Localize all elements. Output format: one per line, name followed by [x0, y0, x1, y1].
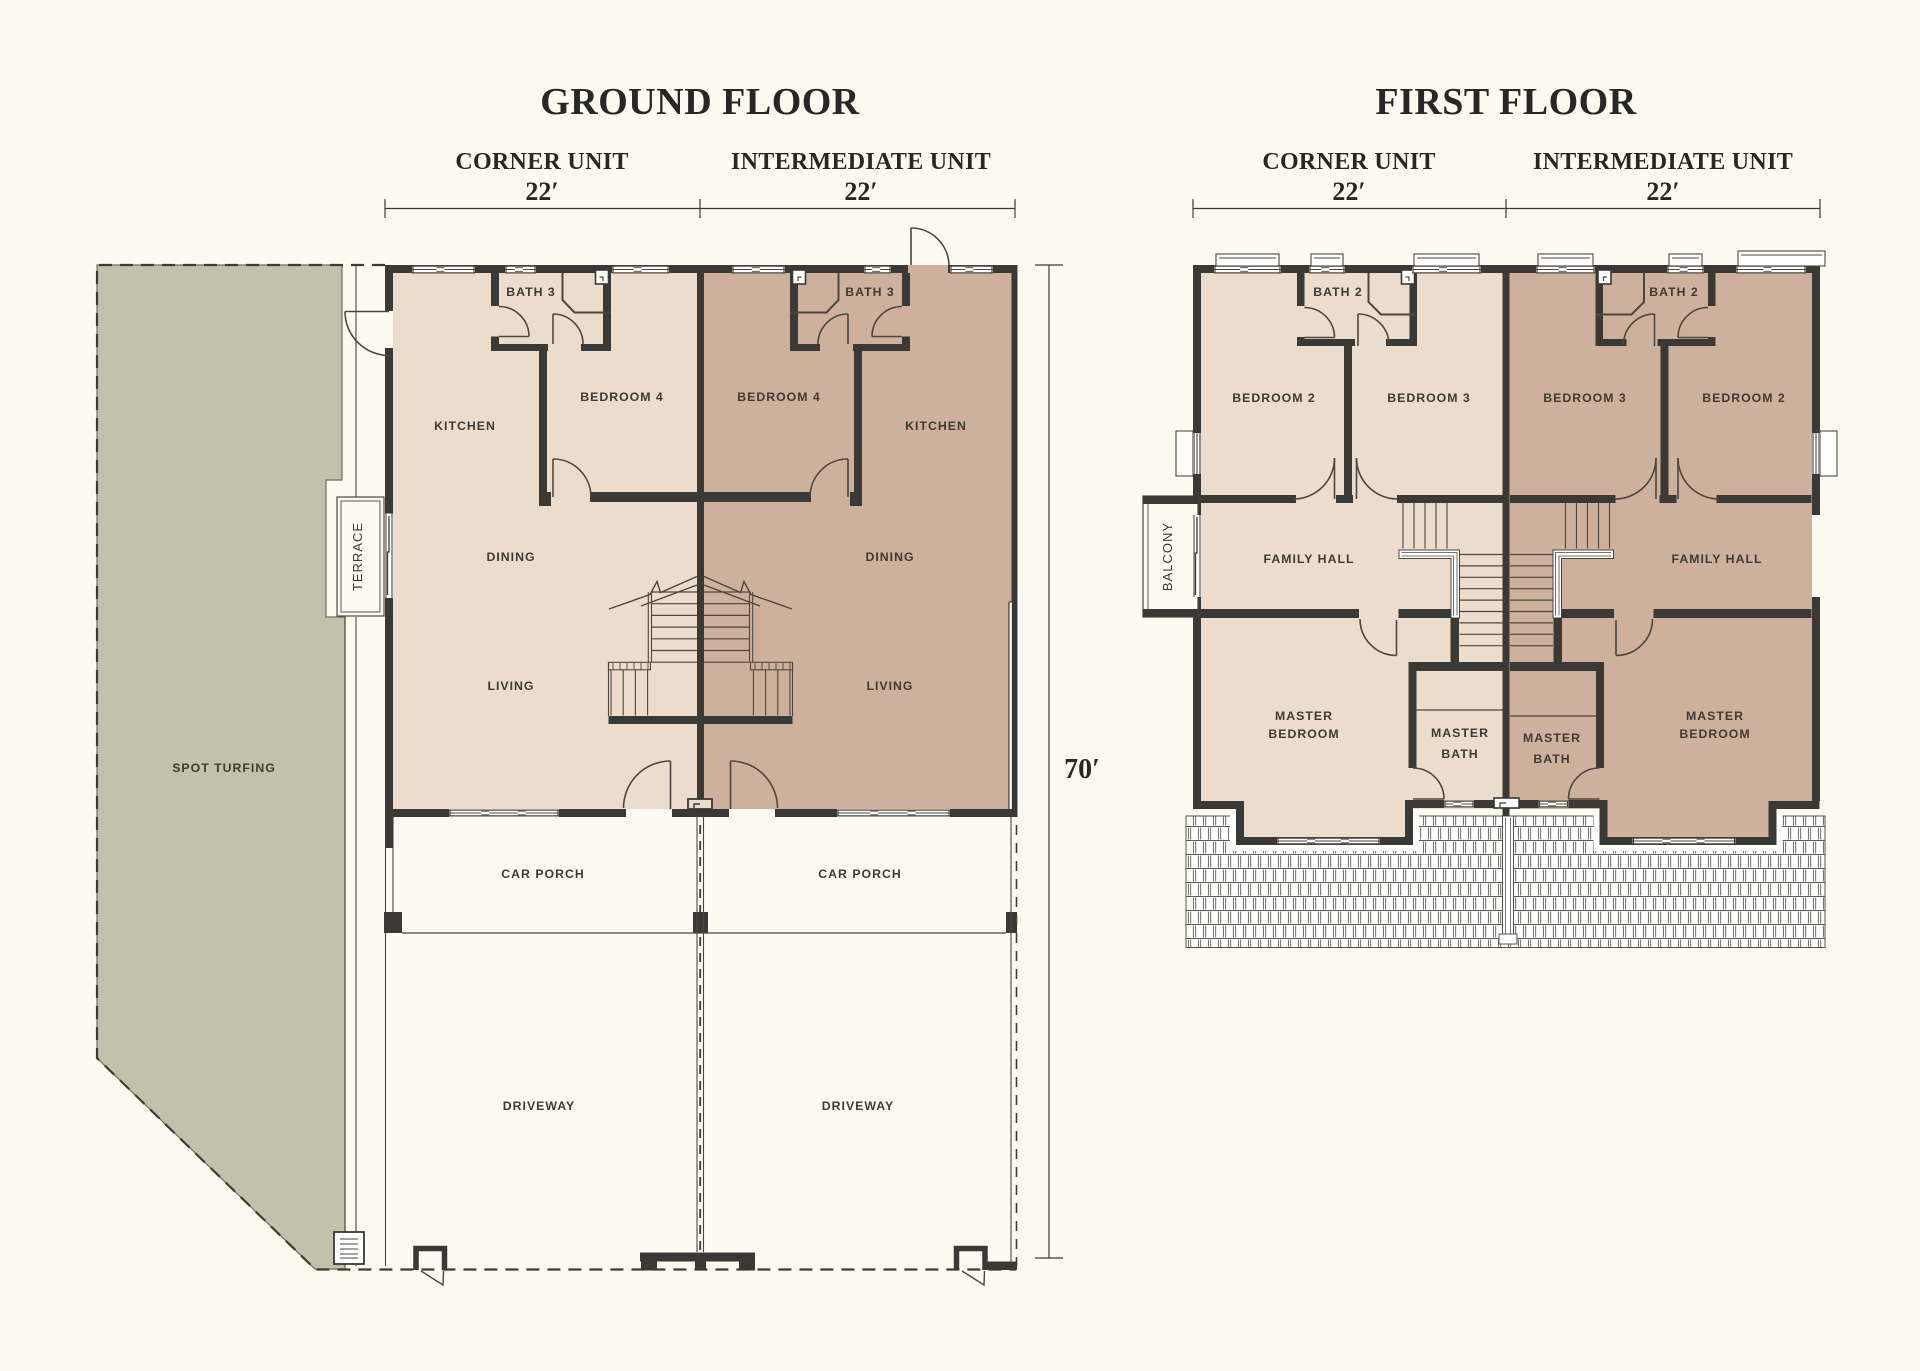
svg-text:MASTER: MASTER — [1523, 731, 1581, 745]
svg-text:FIRST FLOOR: FIRST FLOOR — [1375, 81, 1636, 123]
svg-text:CORNER UNIT: CORNER UNIT — [455, 149, 628, 175]
svg-text:SPOT TURFING: SPOT TURFING — [172, 761, 276, 775]
svg-text:LIVING: LIVING — [488, 679, 535, 693]
svg-text:KITCHEN: KITCHEN — [434, 419, 496, 433]
svg-text:FAMILY HALL: FAMILY HALL — [1264, 552, 1355, 566]
svg-text:GROUND FLOOR: GROUND FLOOR — [540, 81, 860, 123]
svg-text:BATH 2: BATH 2 — [1313, 285, 1363, 299]
svg-text:KITCHEN: KITCHEN — [905, 419, 967, 433]
svg-text:CORNER UNIT: CORNER UNIT — [1262, 149, 1435, 175]
svg-text:22′: 22′ — [1332, 177, 1365, 206]
svg-text:22′: 22′ — [1646, 177, 1679, 206]
svg-text:BEDROOM 2: BEDROOM 2 — [1702, 391, 1785, 405]
svg-text:CAR PORCH: CAR PORCH — [501, 867, 584, 881]
svg-text:BEDROOM 4: BEDROOM 4 — [737, 390, 820, 404]
svg-text:FAMILY HALL: FAMILY HALL — [1672, 552, 1763, 566]
svg-text:MASTER: MASTER — [1686, 709, 1744, 723]
svg-text:BATH 3: BATH 3 — [845, 285, 895, 299]
svg-text:BEDROOM: BEDROOM — [1268, 727, 1339, 741]
svg-text:DRIVEWAY: DRIVEWAY — [503, 1099, 575, 1113]
svg-text:BATH: BATH — [1533, 752, 1570, 766]
svg-text:22′: 22′ — [844, 177, 877, 206]
svg-text:BEDROOM 3: BEDROOM 3 — [1543, 391, 1626, 405]
svg-text:MASTER: MASTER — [1275, 709, 1333, 723]
svg-text:TERRACE: TERRACE — [350, 522, 365, 591]
svg-text:BALCONY: BALCONY — [1160, 522, 1175, 591]
svg-text:22′: 22′ — [525, 177, 558, 206]
svg-text:LIVING: LIVING — [867, 679, 914, 693]
svg-text:DRIVEWAY: DRIVEWAY — [822, 1099, 894, 1113]
svg-text:BATH: BATH — [1441, 747, 1478, 761]
svg-text:70′: 70′ — [1064, 754, 1100, 785]
svg-text:CAR PORCH: CAR PORCH — [818, 867, 901, 881]
svg-text:BEDROOM: BEDROOM — [1679, 727, 1750, 741]
svg-text:BEDROOM 3: BEDROOM 3 — [1387, 391, 1470, 405]
svg-text:BATH 3: BATH 3 — [506, 285, 556, 299]
svg-text:INTERMEDIATE UNIT: INTERMEDIATE UNIT — [731, 149, 991, 175]
svg-text:DINING: DINING — [865, 550, 914, 564]
svg-text:BEDROOM 4: BEDROOM 4 — [580, 390, 663, 404]
svg-text:BATH 2: BATH 2 — [1649, 285, 1699, 299]
svg-text:BEDROOM 2: BEDROOM 2 — [1232, 391, 1315, 405]
svg-text:INTERMEDIATE UNIT: INTERMEDIATE UNIT — [1533, 149, 1793, 175]
svg-text:MASTER: MASTER — [1431, 726, 1489, 740]
svg-text:DINING: DINING — [486, 550, 535, 564]
